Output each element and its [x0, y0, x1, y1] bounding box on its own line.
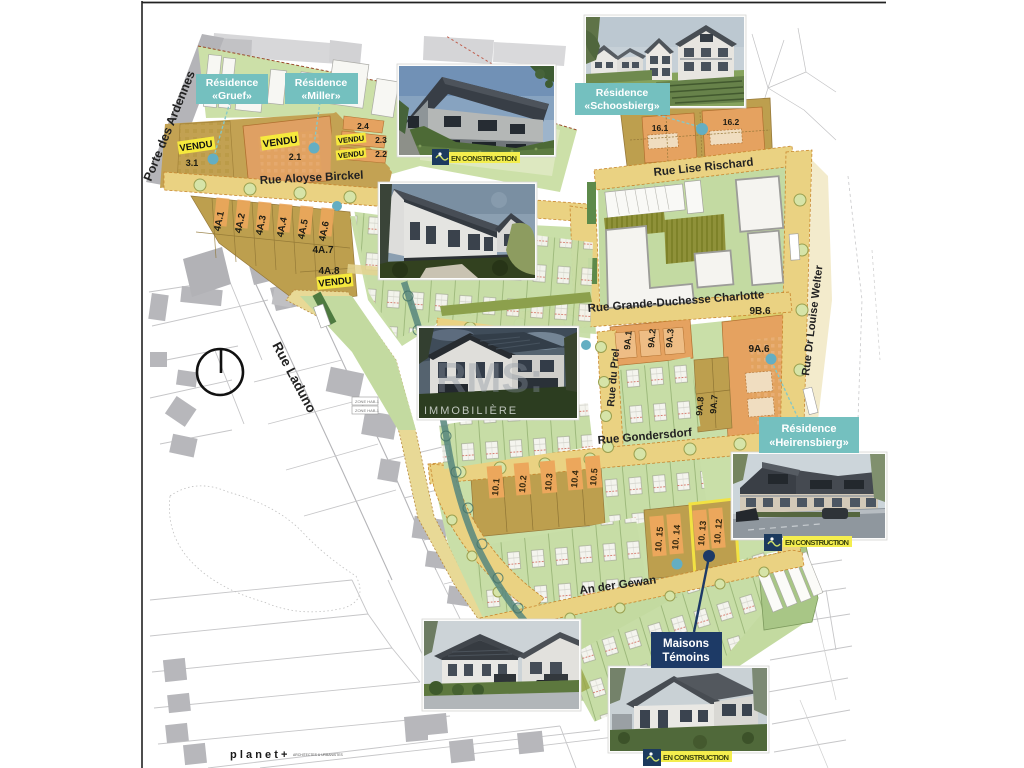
- svg-text:«Heirensbierg»: «Heirensbierg»: [769, 437, 848, 449]
- svg-text:9A.2: 9A.2: [646, 328, 658, 348]
- svg-text:planet+: planet+: [230, 749, 291, 761]
- svg-text:Résidence: Résidence: [295, 77, 348, 89]
- svg-text:9A.3: 9A.3: [664, 328, 676, 348]
- svg-text:2.1: 2.1: [289, 152, 302, 162]
- svg-text:2.3: 2.3: [375, 135, 387, 145]
- svg-text:10.4: 10.4: [569, 470, 580, 488]
- svg-text:10.2: 10.2: [517, 475, 528, 493]
- svg-text:IMMOBILIÈRE: IMMOBILIÈRE: [424, 404, 518, 417]
- svg-text:Témoins: Témoins: [662, 652, 709, 664]
- svg-text:9A.6: 9A.6: [748, 344, 770, 355]
- svg-text:9A.8: 9A.8: [694, 396, 706, 416]
- svg-text:EN CONSTRUCTION: EN CONSTRUCTION: [785, 538, 849, 547]
- svg-text:9A.7: 9A.7: [708, 394, 720, 414]
- svg-text:9A.1: 9A.1: [622, 330, 634, 350]
- svg-text:«Miller»: «Miller»: [301, 90, 340, 102]
- svg-text:«Gruef»: «Gruef»: [212, 90, 252, 102]
- svg-text:16.1: 16.1: [652, 123, 669, 133]
- svg-text:10.3: 10.3: [543, 473, 554, 491]
- svg-text:4A.7: 4A.7: [312, 245, 334, 256]
- svg-text:10.1: 10.1: [490, 478, 501, 496]
- svg-text:Résidence: Résidence: [781, 423, 836, 435]
- svg-text:9B.6: 9B.6: [749, 306, 771, 317]
- svg-text:Résidence: Résidence: [596, 87, 649, 99]
- svg-text:Maisons: Maisons: [663, 638, 709, 650]
- svg-text:Résidence: Résidence: [206, 77, 259, 89]
- svg-text:RMS:: RMS:: [436, 354, 543, 401]
- svg-text:«Schoosbierg»: «Schoosbierg»: [584, 100, 659, 112]
- svg-text:2.4: 2.4: [357, 121, 369, 131]
- svg-text:EN CONSTRUCTION: EN CONSTRUCTION: [663, 753, 729, 762]
- svg-text:16.2: 16.2: [723, 117, 740, 127]
- svg-text:EN CONSTRUCTION: EN CONSTRUCTION: [451, 154, 517, 163]
- svg-text:ZONE HAB-1: ZONE HAB-1: [355, 408, 380, 413]
- svg-text:4A.8: 4A.8: [318, 266, 340, 277]
- svg-text:ZONE HAB-1: ZONE HAB-1: [355, 399, 380, 404]
- svg-text:2.2: 2.2: [375, 149, 387, 159]
- svg-text:3.1: 3.1: [186, 158, 199, 168]
- svg-text:10.5: 10.5: [588, 468, 599, 486]
- svg-text:ARCHITECTES & URBANISTES: ARCHITECTES & URBANISTES: [293, 753, 343, 757]
